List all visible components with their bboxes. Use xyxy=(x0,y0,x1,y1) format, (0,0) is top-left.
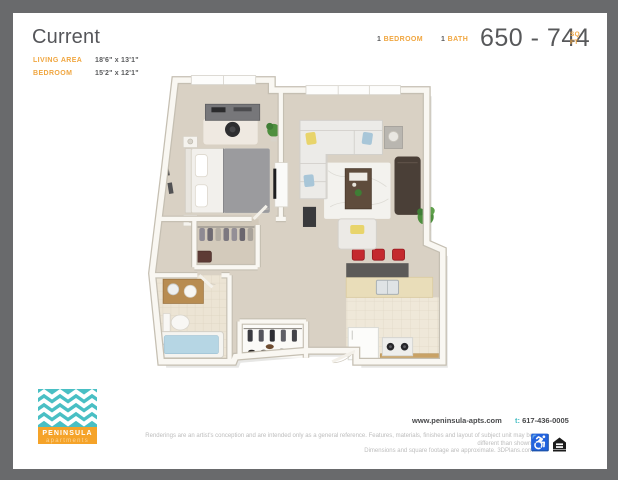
bar-stool xyxy=(392,249,404,260)
bedroom-closet-area xyxy=(194,219,258,267)
tv xyxy=(273,169,276,199)
website-url: www.peninsula-apts.com xyxy=(412,416,502,425)
blanket xyxy=(223,149,269,213)
bath-count: 1 BATH xyxy=(441,36,468,43)
pillow-yellow xyxy=(305,132,317,145)
shoes xyxy=(266,344,274,349)
living-window xyxy=(306,86,401,95)
headboard xyxy=(185,149,191,213)
bedroom-dimension-row: BEDROOM15'2" x 12'1" xyxy=(33,70,139,82)
floorplan-render xyxy=(139,66,481,398)
equal-housing-icon xyxy=(552,437,567,452)
disclaimer: Renderings are an artist's conception an… xyxy=(128,433,533,456)
bar-stool xyxy=(372,249,384,260)
bedroom-label: BEDROOM xyxy=(33,70,95,77)
wheelchair-accessible-icon: ♿ xyxy=(530,435,550,452)
bar-stool xyxy=(352,249,364,260)
sink xyxy=(184,285,196,297)
logo-subtitle: apartments xyxy=(38,438,97,444)
breakfast-bar xyxy=(346,263,408,277)
square-footage-unit: SQ FT xyxy=(570,31,580,46)
disclaimer-line-1: Renderings are an artist's conception an… xyxy=(128,433,533,448)
toilet xyxy=(171,315,189,330)
page-title: Current xyxy=(32,26,100,49)
flyer-page: Current LIVING AREA18'6" x 13'1" BEDROOM… xyxy=(0,0,618,480)
chaise-lounge xyxy=(394,157,420,215)
disclaimer-line-2: Dimensions and square footage are approx… xyxy=(128,448,533,456)
living-area-value: 18'6" x 13'1" xyxy=(95,57,139,64)
living-area-label: LIVING AREA xyxy=(33,57,95,64)
media-cabinet xyxy=(303,207,316,227)
table-lamp xyxy=(388,131,398,141)
logo-name: PENINSULA xyxy=(38,429,97,438)
bedroom-count: 1 BEDROOM xyxy=(377,36,423,43)
phone-number: t: 617-436-0005 xyxy=(515,416,569,425)
tv-console xyxy=(273,163,288,207)
pillow xyxy=(195,185,207,207)
desk xyxy=(205,104,259,120)
mirror xyxy=(168,284,179,295)
living-area-dimension-row: LIVING AREA18'6" x 13'1" xyxy=(33,57,139,69)
pillow-blue xyxy=(303,174,314,187)
logo-wave-icon xyxy=(38,389,97,427)
peninsula-logo: PENINSULA apartments xyxy=(38,389,97,444)
bathroom-area xyxy=(153,275,229,359)
logo-band: PENINSULA apartments xyxy=(38,427,97,444)
pillow-yellow xyxy=(350,225,364,234)
bedroom-value: 15'2" x 12'1" xyxy=(95,70,139,77)
pillow-blue xyxy=(362,132,374,145)
pillow xyxy=(195,155,207,177)
suitcase xyxy=(196,251,211,262)
